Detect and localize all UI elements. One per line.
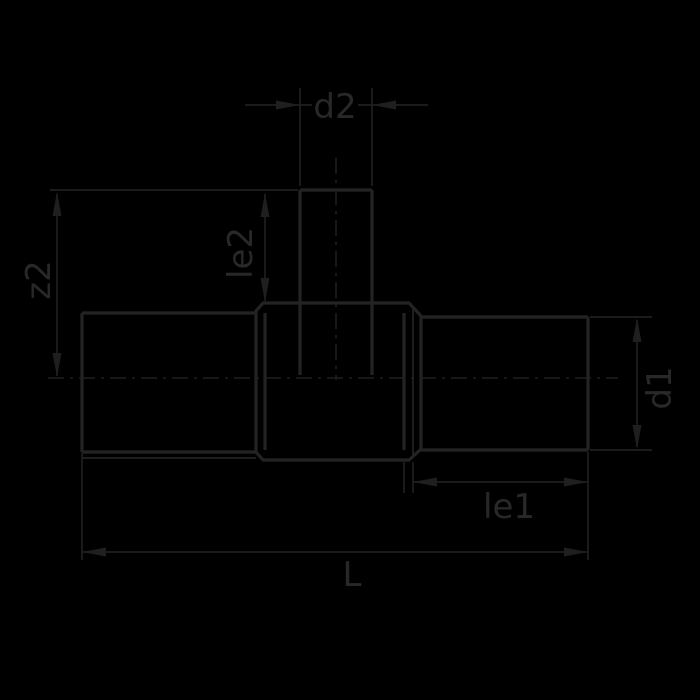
le1-label: le1 — [483, 487, 535, 527]
d2-label: d2 — [313, 87, 356, 127]
z2-label: z2 — [19, 260, 59, 299]
le2-label: le2 — [221, 227, 261, 279]
drawing-canvas: d2 le2 z2 d1 le1 L — [0, 0, 700, 700]
l-label: L — [343, 555, 362, 595]
technical-drawing: d2 le2 z2 d1 le1 L — [0, 0, 700, 700]
d1-label: d1 — [640, 366, 680, 409]
